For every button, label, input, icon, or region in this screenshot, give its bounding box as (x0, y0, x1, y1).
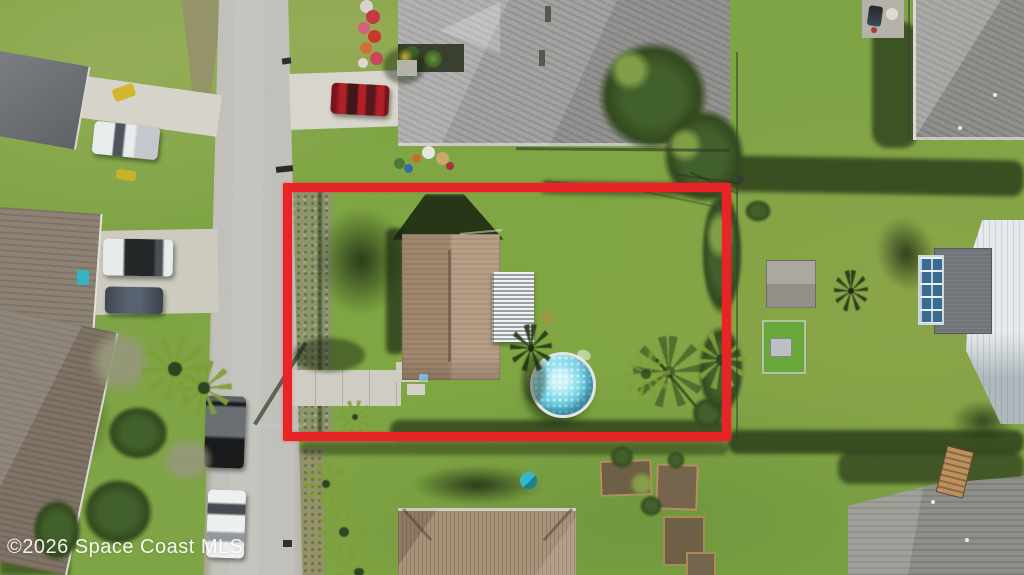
flower-cluster (360, 42, 372, 54)
gray-sedan (105, 286, 163, 314)
garden-bush (664, 448, 688, 472)
small-round-pool (520, 472, 537, 489)
roof-vent (931, 500, 935, 504)
palm-tree-right-yard (834, 270, 868, 312)
neighbor-house-bottom-roof (398, 508, 576, 575)
topright-house-shadow (872, 22, 918, 148)
red-car (330, 83, 390, 117)
banana-plant (624, 466, 660, 502)
palm-tree (176, 360, 232, 416)
roof-vent (958, 126, 962, 130)
roof-vent (965, 538, 969, 542)
roof-vent (545, 6, 551, 22)
dog-kennel (770, 338, 792, 357)
white-pickup-truck (91, 121, 160, 161)
patio-item-red (446, 162, 454, 170)
patio-item-red (871, 27, 877, 33)
neighbor-house-topright-roof (913, 0, 1024, 140)
tree-highlight (600, 40, 660, 100)
watermark-text: ©2026 Space Coast MLS (7, 536, 243, 559)
patio-item-blue (404, 164, 413, 173)
palm-tree (304, 462, 348, 506)
blue-pool-cage (918, 255, 944, 325)
flower-cluster (358, 58, 368, 68)
hedge-right-top (728, 155, 1024, 196)
palm-tree (318, 506, 370, 558)
flower-cluster (366, 10, 380, 24)
teal-recycle-bin (77, 270, 89, 285)
neighbor-house-topleft-roof (0, 50, 91, 149)
roof-vent (539, 50, 545, 66)
yellow-yard-toy (115, 169, 136, 182)
courtyard-plant (424, 50, 442, 68)
aerial-photo: ©2026 Space Coast MLS (0, 0, 1024, 575)
patio-item-orange (412, 154, 421, 163)
garden-bed (686, 552, 716, 575)
street-worn-track (229, 0, 265, 575)
mailbox (283, 540, 292, 547)
patio-item-white-table (422, 146, 435, 159)
grill (867, 5, 884, 27)
utility-pad (397, 60, 417, 76)
flower-cluster (370, 52, 383, 65)
house-shadow-bottom (386, 458, 568, 512)
shed-roof (766, 260, 816, 308)
fence-line-topright (908, 0, 910, 136)
patio-table (886, 8, 898, 20)
property-boundary-outline (283, 183, 731, 441)
tree-highlight (660, 120, 710, 170)
tree-canopy (740, 196, 776, 226)
fence-line-right (736, 52, 738, 444)
mailbox (282, 57, 292, 64)
tree-canopy (24, 488, 90, 572)
white-suv (103, 238, 174, 276)
flower-cluster (368, 30, 381, 43)
roof-vent (993, 93, 997, 97)
